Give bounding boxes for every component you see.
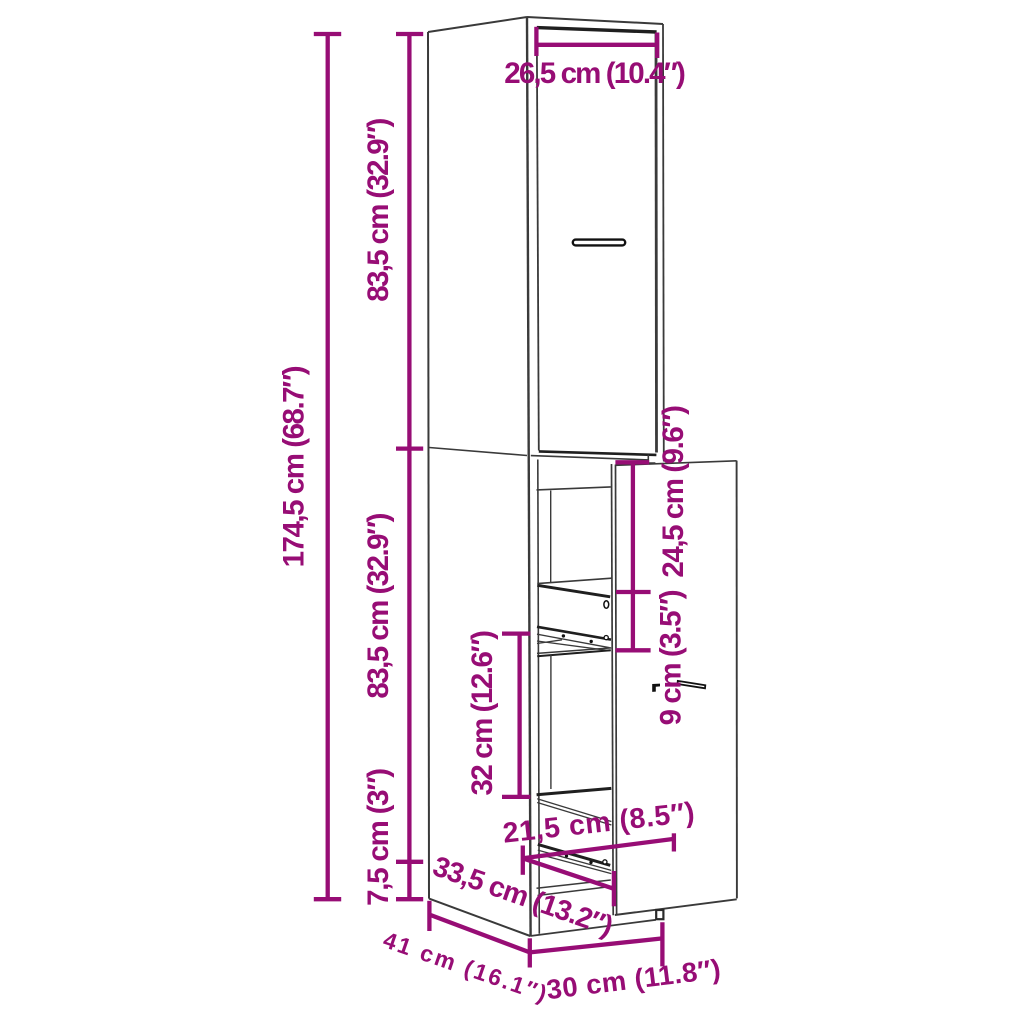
svg-text:174,5 cm (68.7″): 174,5 cm (68.7″) bbox=[278, 365, 311, 567]
svg-text:24,5 cm (9.6″): 24,5 cm (9.6″) bbox=[657, 405, 690, 578]
svg-text:9 cm (3.5″): 9 cm (3.5″) bbox=[655, 589, 688, 725]
svg-text:83,5 cm (32.9″): 83,5 cm (32.9″) bbox=[362, 513, 395, 699]
svg-text:26,5 cm (10.4″): 26,5 cm (10.4″) bbox=[504, 57, 686, 90]
svg-text:83,5 cm (32.9″): 83,5 cm (32.9″) bbox=[362, 118, 395, 302]
svg-text:41 cm (16.1″): 41 cm (16.1″) bbox=[380, 926, 550, 1006]
svg-text:32 cm (12.6″): 32 cm (12.6″) bbox=[466, 630, 499, 796]
svg-text:7,5 cm (3″): 7,5 cm (3″) bbox=[362, 768, 395, 906]
svg-text:30 cm (11.8″): 30 cm (11.8″) bbox=[545, 953, 722, 1005]
